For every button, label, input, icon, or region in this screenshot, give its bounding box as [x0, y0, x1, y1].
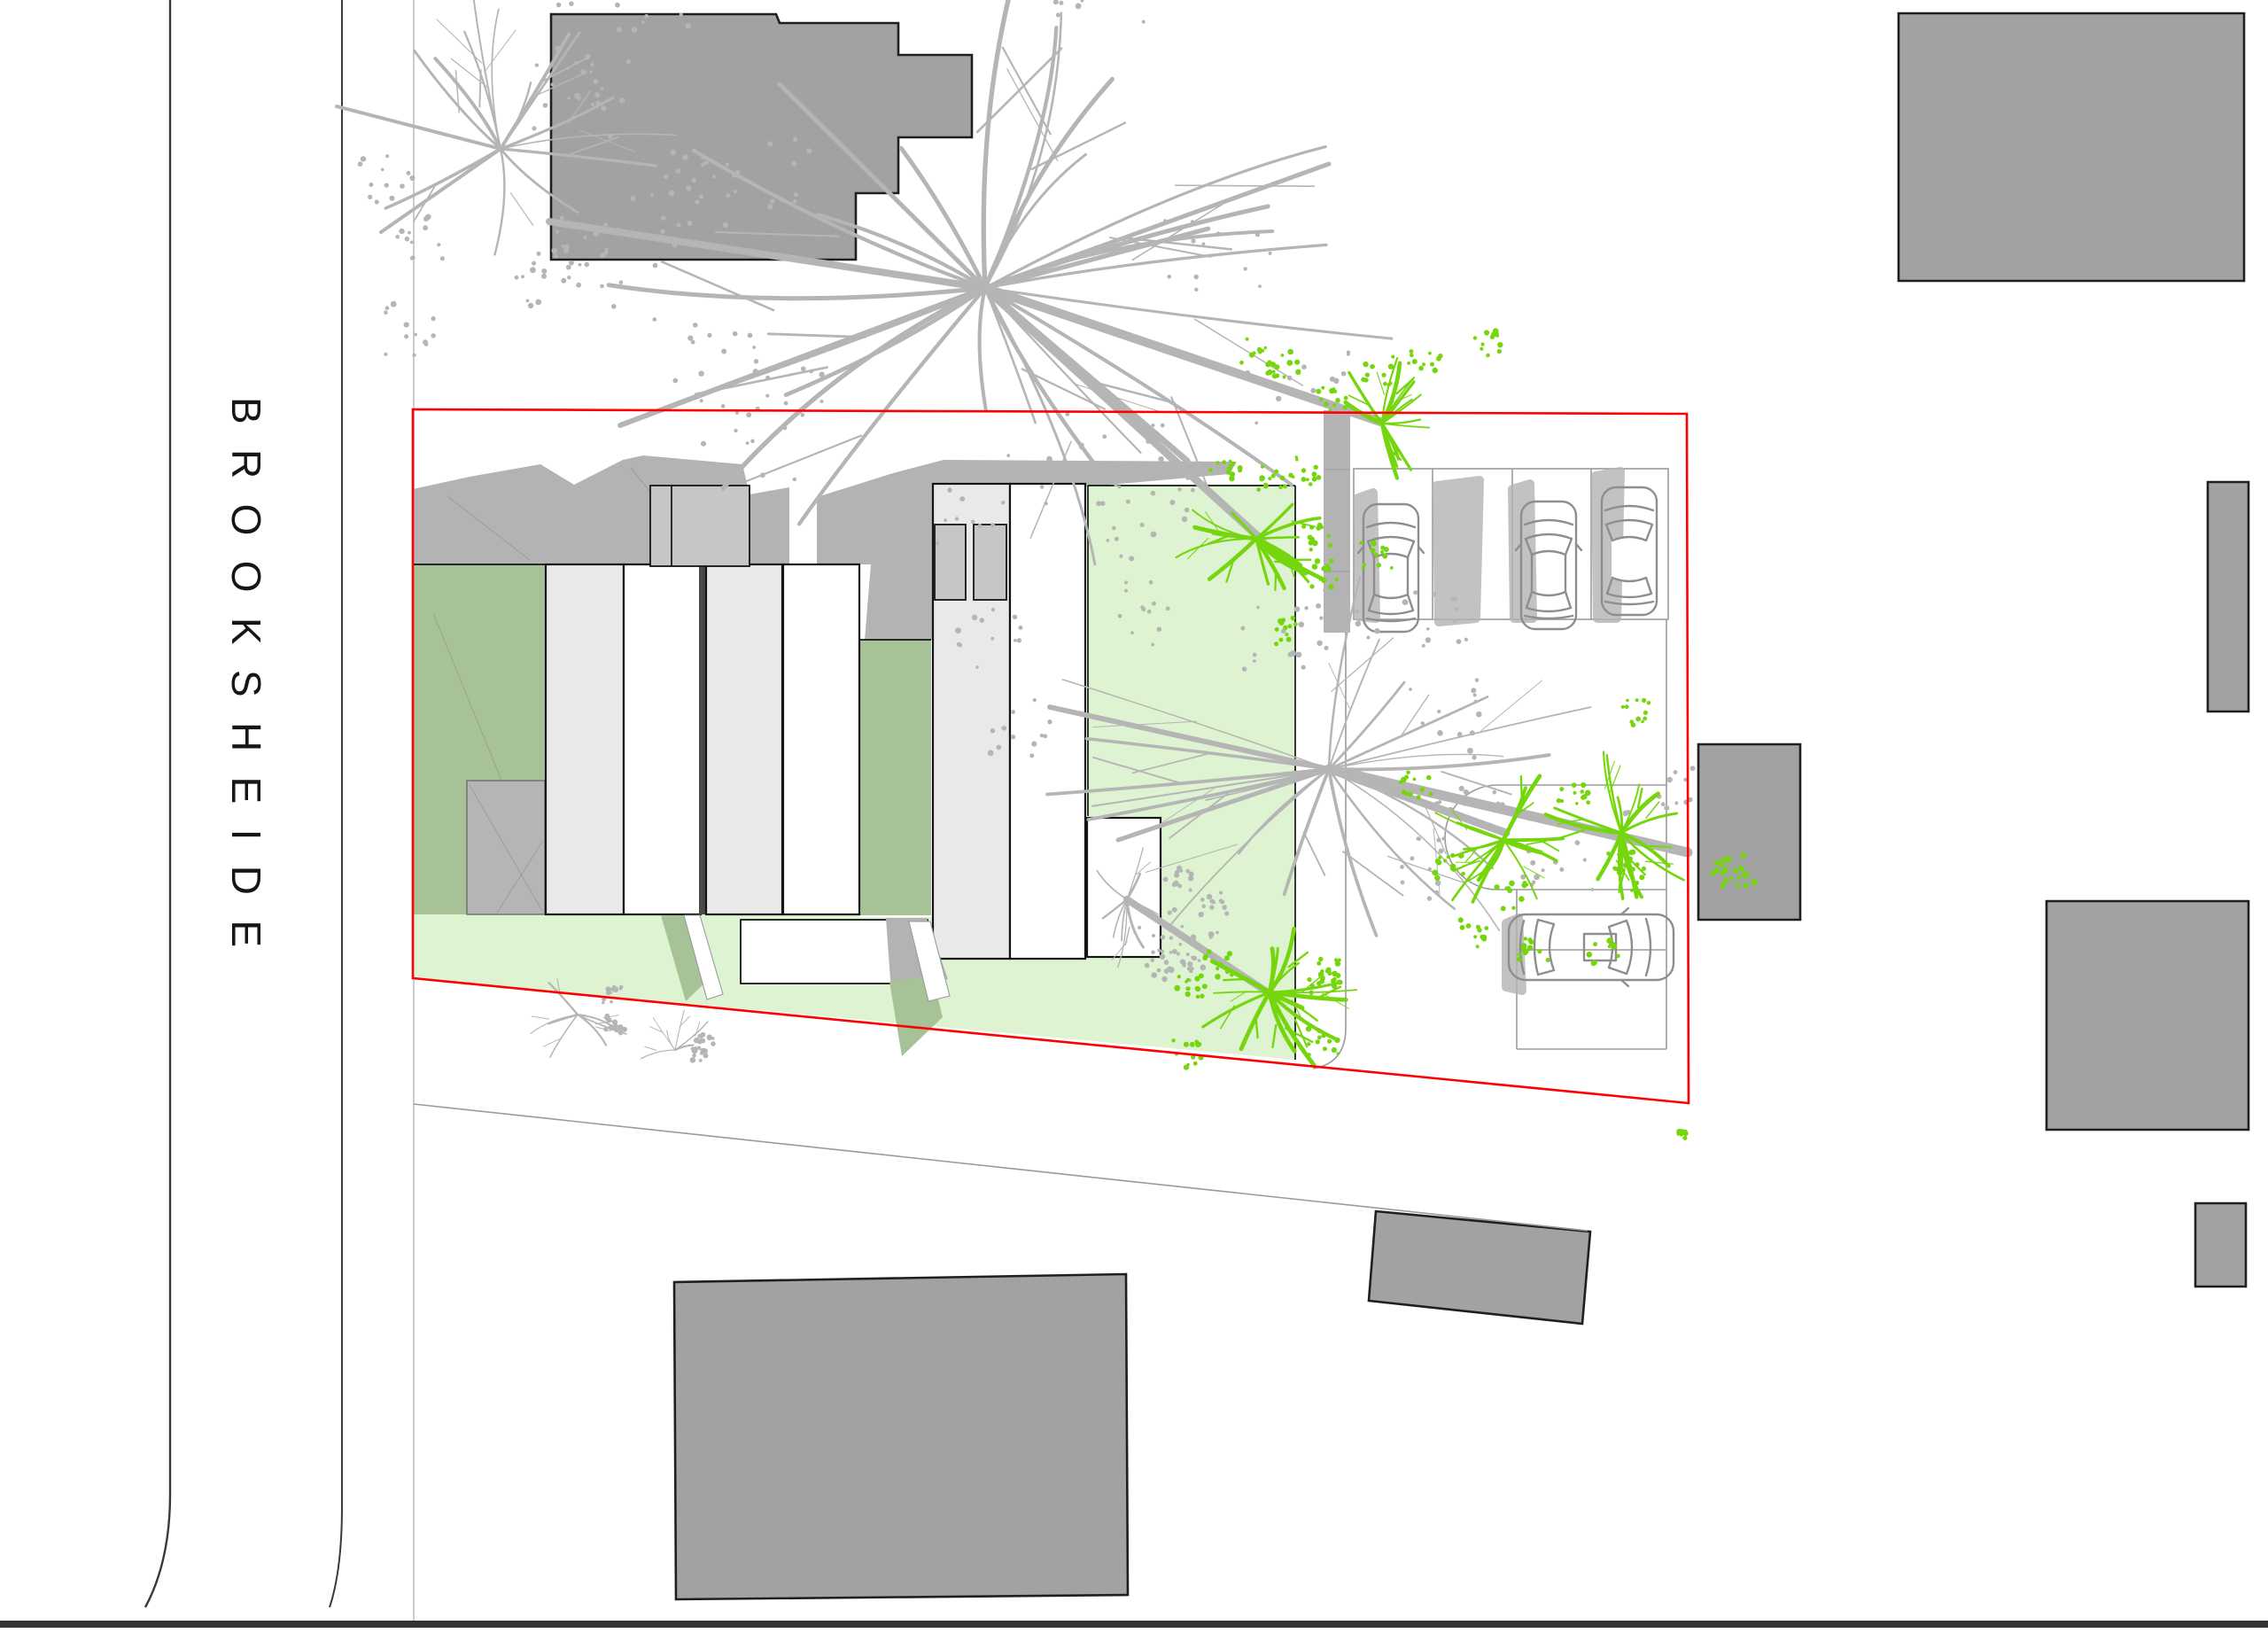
context-building-south-large — [674, 1274, 1128, 1599]
context-building-east-small-upper — [2208, 482, 2249, 712]
building-bar — [624, 564, 701, 914]
street-brooksheide: BROOKSHEIDE — [145, 0, 414, 1621]
shadow — [1437, 480, 1480, 622]
roof-core — [974, 525, 1006, 600]
existing-roof-tongue — [865, 564, 933, 640]
building-bar — [706, 564, 782, 914]
site-plan-canvas: BROOKSHEIDE — [0, 0, 2268, 1633]
street-edge-right — [330, 0, 342, 1607]
context-building-east-small-lower — [2195, 1203, 2246, 1287]
street-edge-left — [145, 0, 170, 1607]
street-name-label: BROOKSHEIDE — [223, 397, 269, 971]
drawing-bottom-border — [0, 1621, 2268, 1628]
parcel-boundary-line — [414, 1104, 1588, 1231]
site-plan — [413, 455, 1295, 1060]
building-bar — [546, 564, 624, 914]
gray-tree — [641, 1010, 716, 1063]
context-building-northwest — [551, 14, 972, 260]
parked-car — [1509, 908, 1674, 986]
parking-area — [1313, 410, 1674, 1069]
roof-core — [650, 486, 750, 566]
garden-shed — [467, 781, 545, 914]
sage-garden-middle — [859, 640, 931, 915]
green-tree — [1239, 328, 1503, 486]
roof-core — [935, 525, 966, 600]
context-building-northeast — [1899, 13, 2244, 281]
green-tree — [1676, 1129, 1689, 1140]
context-building-east — [2047, 901, 2249, 1130]
building-bar — [783, 564, 859, 914]
context-building-southeast-garage — [1698, 744, 1800, 920]
